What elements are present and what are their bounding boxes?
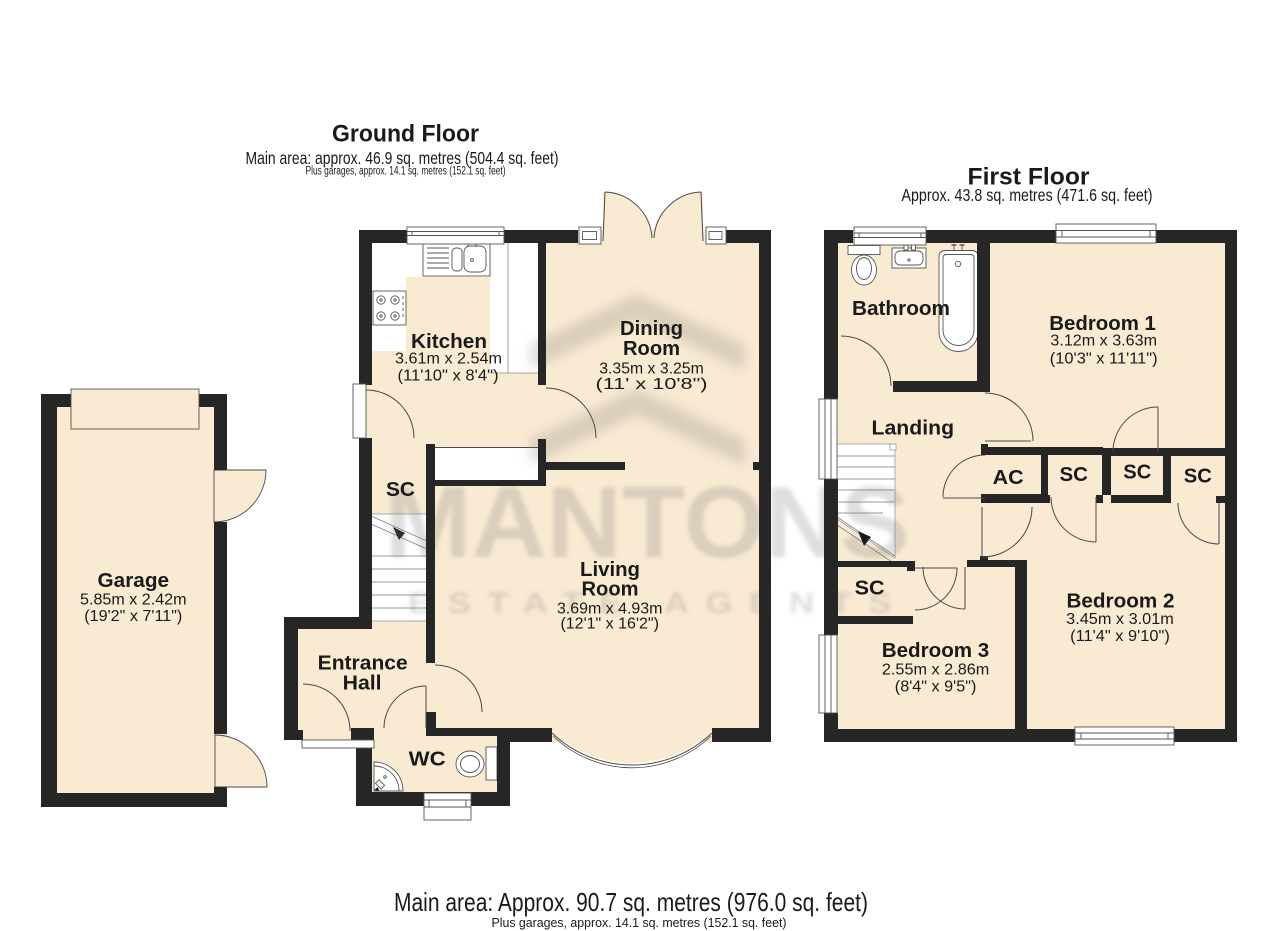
svg-text:SC: SC [386, 478, 415, 501]
svg-text:(12'1" x 16'2"): (12'1" x 16'2") [560, 616, 659, 633]
svg-text:Ground Floor: Ground Floor [332, 121, 479, 148]
svg-text:Approx. 43.8 sq. metres (471.6: Approx. 43.8 sq. metres (471.6 sq. feet) [902, 185, 1153, 205]
svg-text:WC: WC [409, 748, 446, 771]
svg-text:SC: SC [1184, 465, 1212, 488]
svg-text:SC: SC [1123, 460, 1151, 483]
svg-text:Room: Room [623, 337, 680, 360]
svg-text:(11' x 10'8"): (11' x 10'8") [596, 376, 708, 393]
svg-text:(10'3" x 11'11"): (10'3" x 11'11") [1050, 351, 1158, 368]
svg-text:SC: SC [1060, 463, 1089, 486]
svg-text:Hall: Hall [343, 672, 382, 695]
svg-text:3.61m x 2.54m: 3.61m x 2.54m [395, 351, 502, 368]
svg-text:AC: AC [993, 466, 1024, 489]
svg-text:Plus garages, approx. 14.1 sq.: Plus garages, approx. 14.1 sq. metres (1… [492, 915, 787, 930]
svg-text:3.12m x 3.63m: 3.12m x 3.63m [1050, 333, 1157, 350]
svg-text:(19'2" x 7'11"): (19'2" x 7'11") [84, 608, 182, 625]
svg-text:(11'4" x 9'10"): (11'4" x 9'10") [1070, 628, 1170, 645]
svg-text:Room: Room [582, 578, 639, 601]
svg-text:3.45m x 3.01m: 3.45m x 3.01m [1066, 611, 1174, 628]
svg-text:SC: SC [855, 577, 885, 600]
svg-text:Garage: Garage [98, 569, 170, 592]
svg-text:3.35m x 3.25m: 3.35m x 3.25m [599, 361, 704, 378]
svg-text:(8'4" x 9'5"): (8'4" x 9'5") [895, 679, 977, 696]
svg-text:Bathroom: Bathroom [852, 297, 950, 320]
svg-text:Plus garages, approx. 14.1 sq.: Plus garages, approx. 14.1 sq. metres (1… [306, 166, 506, 178]
svg-text:Main area: Approx. 90.7 sq. me: Main area: Approx. 90.7 sq. metres (976.… [394, 887, 868, 917]
svg-text:Landing: Landing [872, 417, 955, 440]
svg-text:Bedroom 3: Bedroom 3 [882, 639, 990, 662]
svg-text:5.85m x 2.42m: 5.85m x 2.42m [80, 592, 187, 609]
svg-text:(11'10" x 8'4"): (11'10" x 8'4") [398, 368, 499, 385]
svg-text:Bedroom 2: Bedroom 2 [1067, 590, 1175, 613]
svg-text:2.55m x 2.86m: 2.55m x 2.86m [882, 662, 989, 679]
